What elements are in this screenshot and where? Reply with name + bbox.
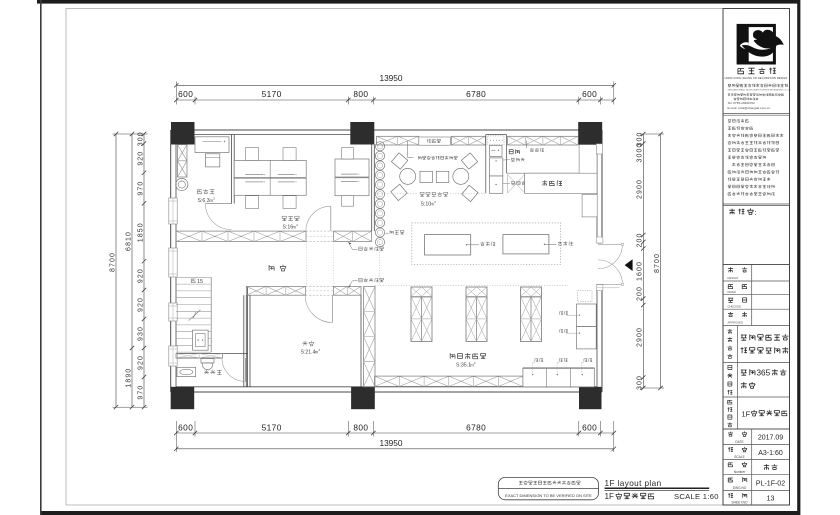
svg-text:SHENZHEN SHANG TAI DECORATION: SHENZHEN SHANG TAI DECORATION DESIGN ENG… [728, 88, 792, 91]
svg-text:Number: Number [734, 470, 746, 474]
svg-text:2900: 2900 [637, 327, 644, 347]
svg-text:A3-1:60: A3-1:60 [758, 450, 783, 457]
svg-text:EXACT DIMENSION TO BE VERIFIED: EXACT DIMENSION TO BE VERIFIED ON SITE [505, 493, 592, 498]
svg-text:Tel: 0755-23990702: Tel: 0755-23990702 [728, 101, 756, 105]
svg-text:1F: 1F [605, 492, 615, 501]
svg-text:200: 200 [637, 286, 644, 301]
svg-text:920: 920 [137, 268, 144, 283]
svg-text:13: 13 [767, 496, 775, 503]
svg-text:1F layout plan: 1F layout plan [605, 479, 662, 488]
svg-text:8700: 8700 [109, 252, 116, 272]
svg-text:600: 600 [582, 422, 597, 432]
svg-text:300: 300 [137, 131, 144, 146]
svg-text:800: 800 [353, 89, 368, 99]
svg-text:1600: 1600 [637, 261, 644, 281]
svg-text:5170: 5170 [262, 89, 282, 99]
svg-text::: : [755, 208, 757, 217]
svg-text:HONG KONG SHANG TAI DECORATION: HONG KONG SHANG TAI DECORATION DESIGN [725, 76, 788, 80]
svg-text:2017.09: 2017.09 [758, 435, 783, 442]
svg-text:600: 600 [178, 89, 193, 99]
svg-text:5170: 5170 [262, 422, 282, 432]
svg-text:920: 920 [137, 355, 144, 370]
svg-text:6780: 6780 [466, 89, 486, 99]
svg-text:CHECKED: CHECKED [728, 304, 742, 308]
svg-text:PL-1F-02: PL-1F-02 [756, 480, 785, 487]
svg-text:APPROVED: APPROVED [728, 321, 744, 325]
svg-text:300: 300 [637, 375, 644, 390]
svg-text:600: 600 [178, 422, 193, 432]
svg-text:200: 200 [637, 233, 644, 248]
svg-text:S:21.4: S:21.4 [301, 350, 316, 356]
svg-text:13950: 13950 [379, 438, 402, 448]
svg-text:DRAW: DRAW [728, 290, 737, 294]
svg-text:970: 970 [137, 181, 144, 196]
svg-text:SCALE: SCALE [734, 455, 744, 459]
svg-text:365: 365 [757, 369, 771, 378]
svg-text:3000: 3000 [637, 143, 644, 163]
svg-text:6780: 6780 [466, 422, 486, 432]
svg-text:970: 970 [137, 385, 144, 400]
svg-text:2900: 2900 [637, 179, 644, 199]
svg-text:SCALE 1:60: SCALE 1:60 [674, 492, 719, 501]
svg-text:DWG.NO: DWG.NO [733, 486, 747, 490]
svg-text:800: 800 [353, 422, 368, 432]
svg-text:920: 920 [137, 297, 144, 312]
svg-text:1890: 1890 [125, 368, 132, 388]
svg-text:SHEET.NO: SHEET.NO [732, 500, 748, 504]
svg-text:8700: 8700 [654, 253, 661, 273]
svg-text:1850: 1850 [137, 222, 144, 242]
svg-text:S:35.1: S:35.1 [456, 363, 471, 369]
svg-text:6810: 6810 [125, 231, 132, 251]
svg-text:930: 930 [137, 326, 144, 341]
svg-text:DESIGN: DESIGN [728, 276, 739, 280]
svg-text:920: 920 [137, 151, 144, 166]
svg-text:S:6.3: S:6.3 [198, 198, 210, 204]
svg-text:E-mail: sztai@shangtai.com.cn: E-mail: sztai@shangtai.com.cn [728, 106, 771, 110]
svg-text:13950: 13950 [379, 73, 402, 83]
svg-text:600: 600 [582, 89, 597, 99]
svg-text:1F: 1F [742, 410, 751, 419]
svg-text:DATE: DATE [735, 440, 743, 444]
